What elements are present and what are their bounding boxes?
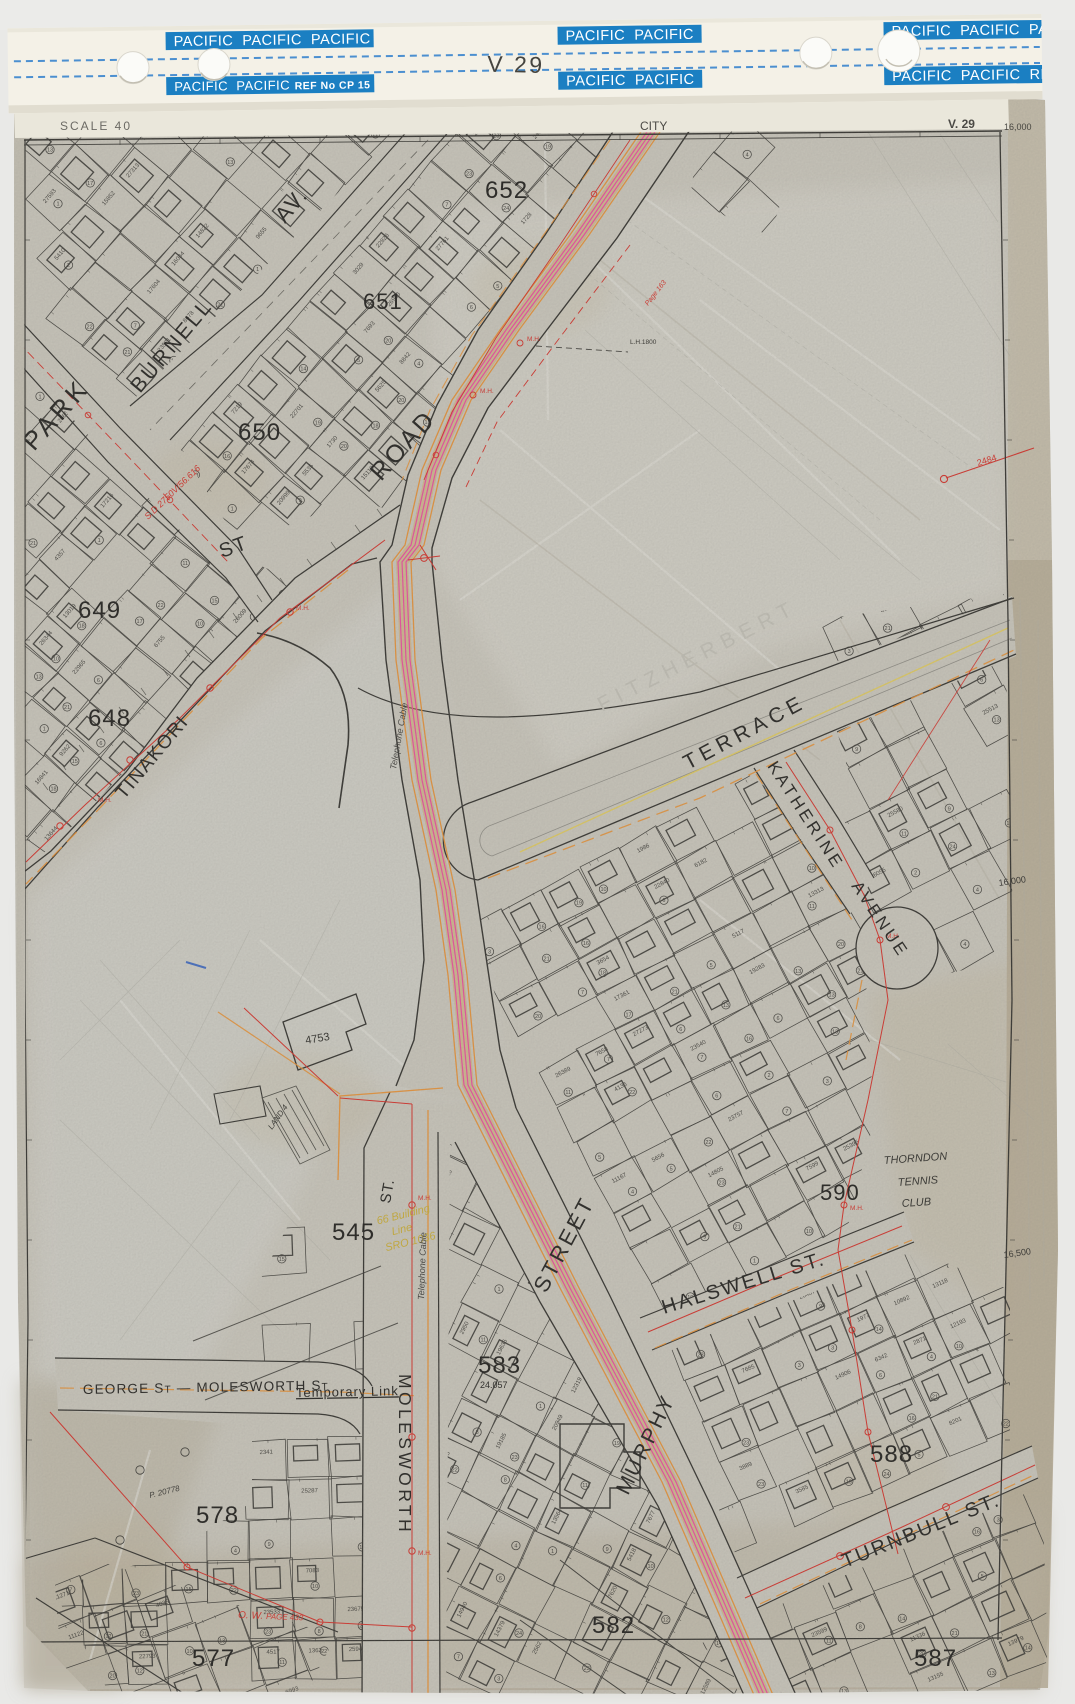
svg-text:SCALE 40: SCALE 40 bbox=[60, 119, 132, 133]
svg-text:PACIFIC PACIFIC RE: PACIFIC PACIFIC RE bbox=[892, 67, 1051, 85]
svg-text:CITY: CITY bbox=[640, 119, 667, 133]
svg-text:PACIFIC PACIFIC: PACIFIC PACIFIC bbox=[565, 27, 694, 45]
svg-text:V. 29: V. 29 bbox=[948, 117, 975, 131]
svg-text:PACIFIC PACIFIC PACIFIC: PACIFIC PACIFIC PACIFIC bbox=[174, 31, 371, 50]
svg-text:V 29: V 29 bbox=[487, 51, 545, 78]
svg-text:16,000: 16,000 bbox=[1004, 122, 1032, 132]
svg-text:PACIFIC PACIFIC: PACIFIC PACIFIC bbox=[566, 72, 695, 90]
